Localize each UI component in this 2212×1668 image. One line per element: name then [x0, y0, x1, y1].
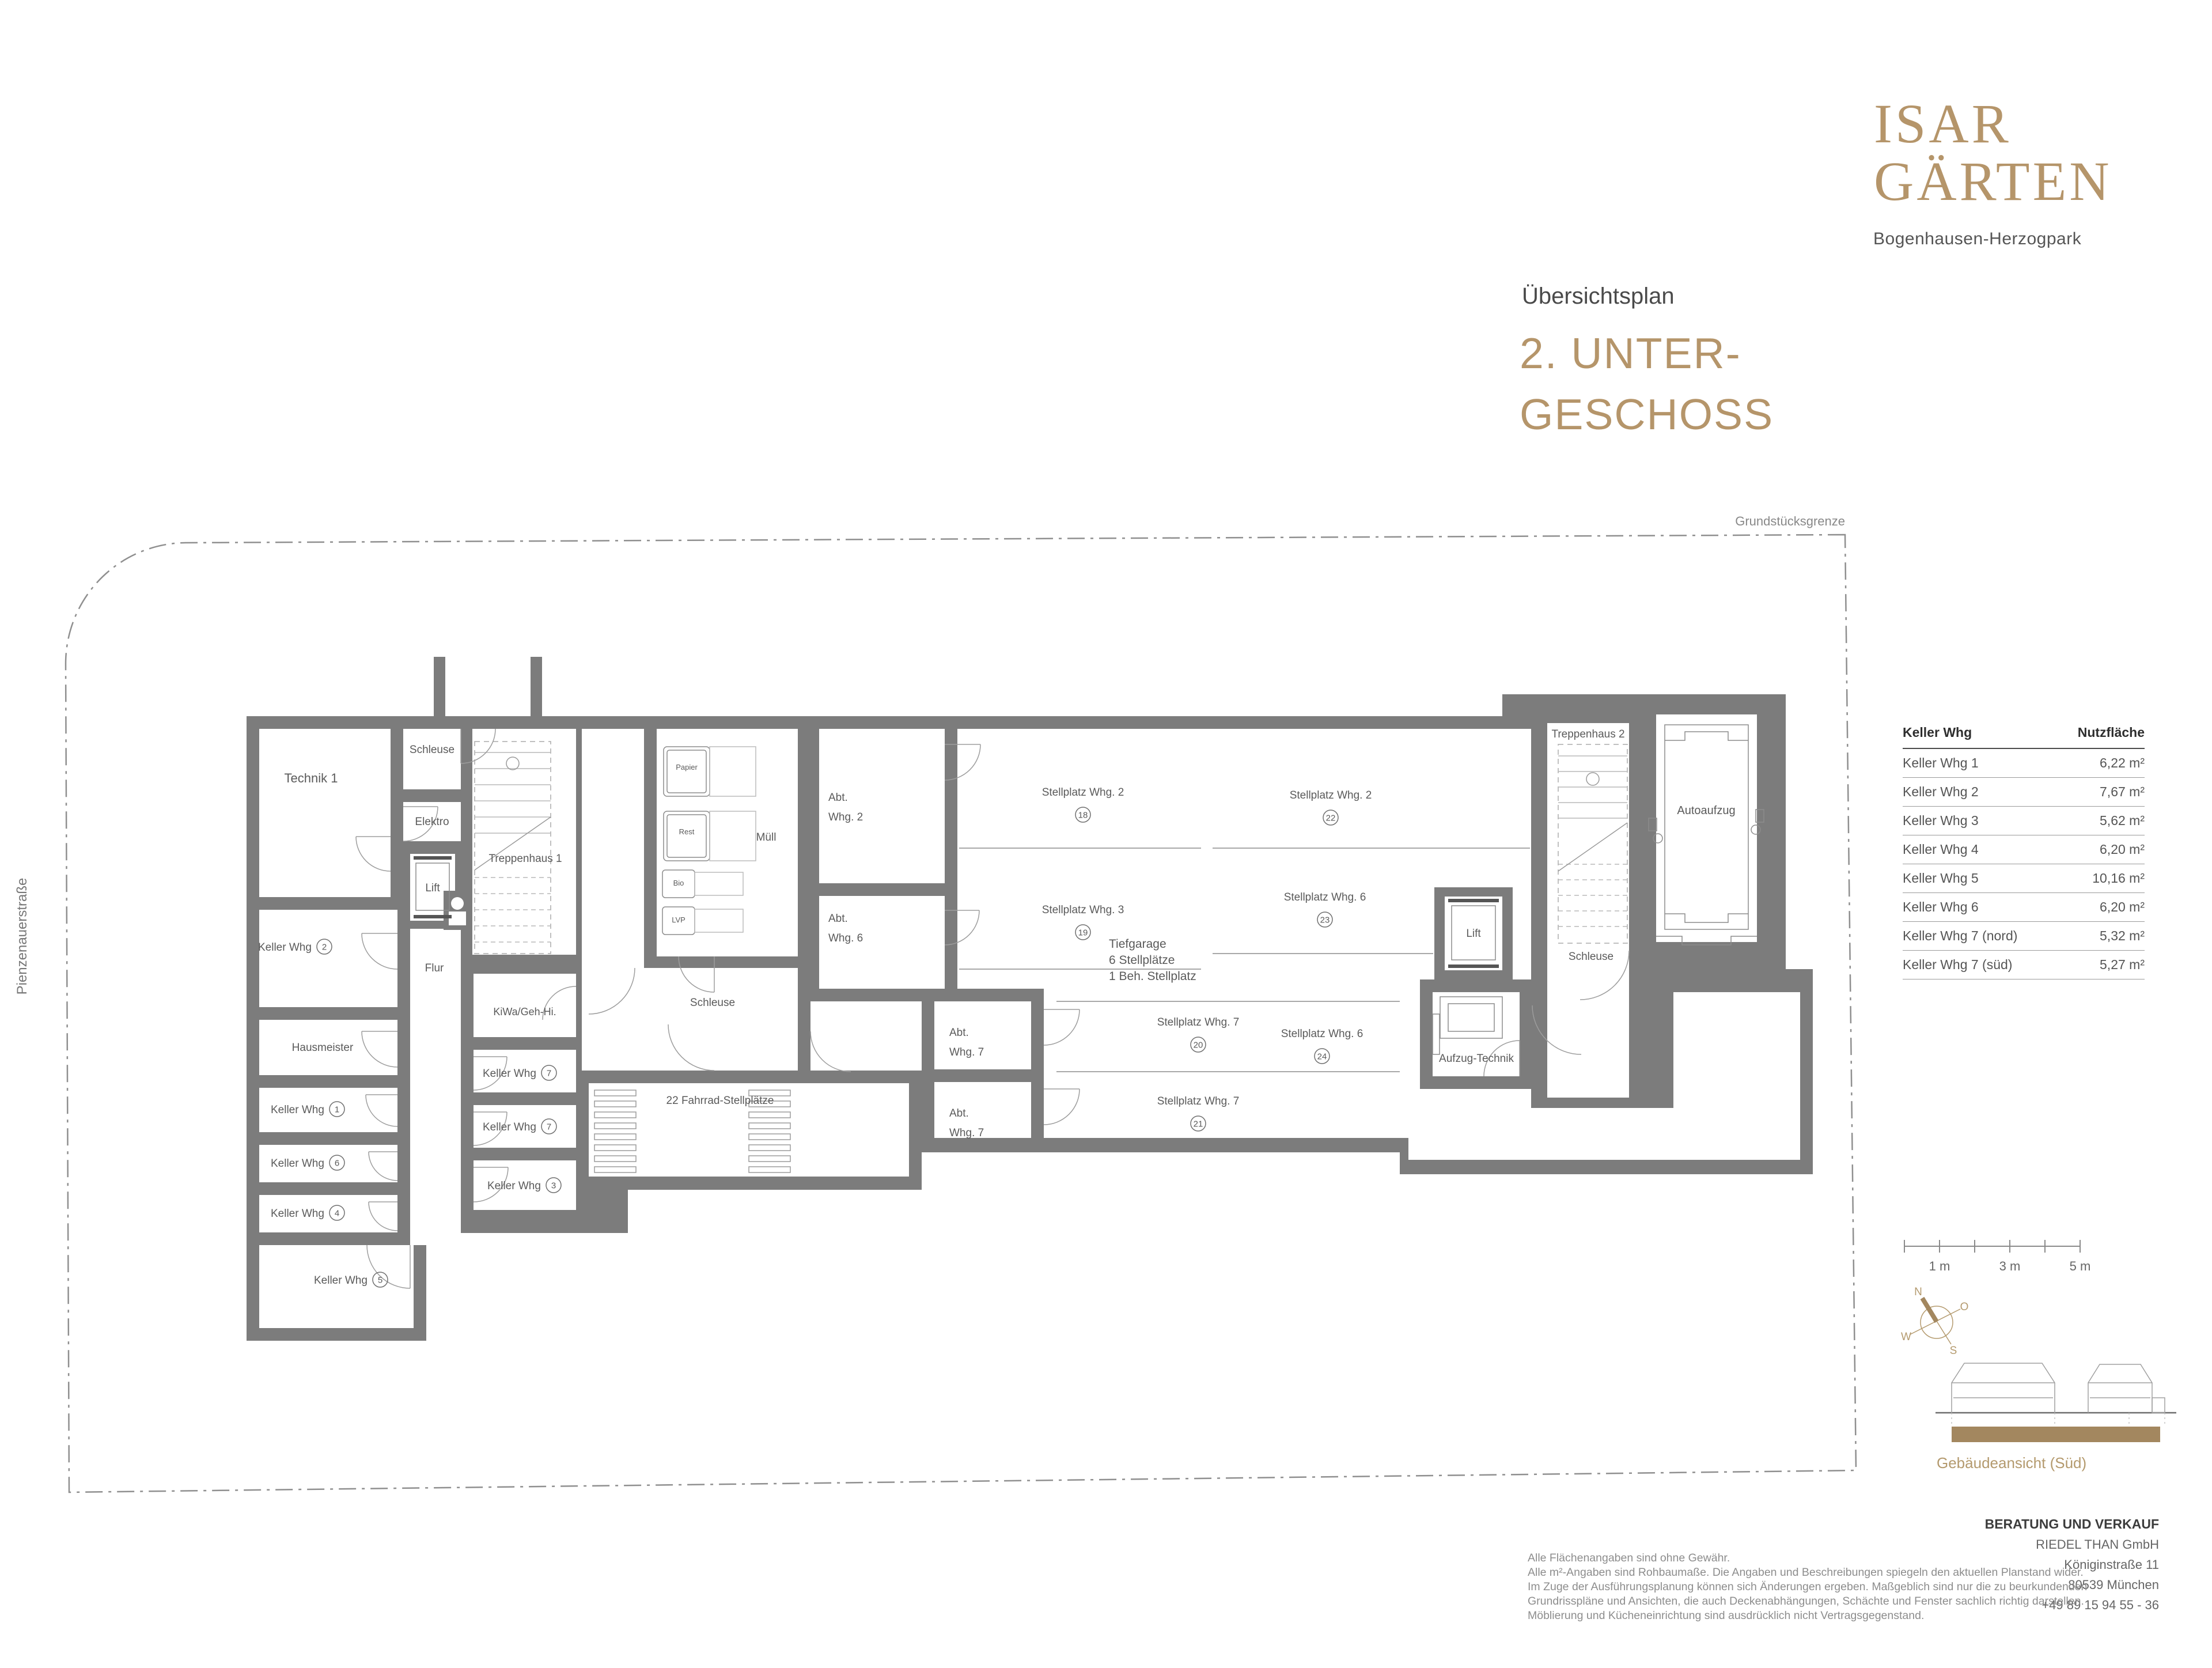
room-number: 5: [378, 1276, 382, 1285]
room-label: Technik 1: [285, 771, 338, 785]
bike-rack-icon: [749, 1112, 790, 1118]
room-number: 23: [1320, 916, 1330, 925]
room-label: Schleuse: [410, 744, 454, 756]
room-label: LVP: [672, 916, 685, 924]
room-label: Keller Whg: [314, 1274, 368, 1287]
bike-rack-icon: [594, 1145, 636, 1151]
bike-rack-icon: [594, 1123, 636, 1129]
bike-rack-icon: [594, 1167, 636, 1172]
elevation-caption: Gebäudeansicht (Süd): [1937, 1454, 2086, 1472]
room-number: 24: [1317, 1052, 1327, 1062]
room-label: Stellplatz Whg. 3: [1042, 904, 1124, 916]
room-label: Keller Whg: [258, 941, 312, 954]
compass-north: N: [1914, 1286, 1922, 1298]
room-label: Elektro: [415, 816, 449, 828]
room-label: Tiefgarage: [1109, 937, 1166, 951]
room-label: Autoaufzug: [1677, 804, 1735, 817]
room-label: Treppenhaus 2: [1551, 728, 1624, 740]
room-label: Whg. 2: [828, 811, 863, 823]
room-label: Treppenhaus 1: [488, 853, 562, 865]
room-label: Abt.: [828, 913, 848, 925]
room-label: Lift: [1466, 928, 1481, 940]
compass-needle-icon: [1922, 1298, 1937, 1322]
room-number: 18: [1078, 811, 1088, 820]
bike-rack-icon: [749, 1145, 790, 1151]
bike-rack-icon: [594, 1101, 636, 1107]
room-number: 4: [335, 1209, 339, 1219]
street-label: Pienzenauerstraße: [14, 878, 30, 995]
compass-east: O: [1960, 1301, 1969, 1313]
room-label: Schleuse: [1569, 951, 1613, 963]
room-label: Flur: [425, 962, 444, 974]
bike-rack-icon: [594, 1156, 636, 1162]
room-number: 7: [547, 1122, 551, 1132]
room-label: 6 Stellplätze: [1109, 954, 1175, 967]
scale-label-5m: 5 m: [2070, 1259, 2091, 1273]
compass-west: W: [1901, 1331, 1911, 1343]
compass-south: S: [1950, 1345, 1957, 1357]
scale-bar: [1904, 1240, 2080, 1253]
room-label: 22 Fahrrad-Stellplätze: [666, 1095, 774, 1107]
room-number: 21: [1194, 1119, 1203, 1129]
room-label: KiWa/Geh-Hi.: [493, 1006, 556, 1018]
room-number: 7: [547, 1069, 551, 1079]
room-label: Bio: [673, 879, 684, 887]
room-label: Keller Whg: [487, 1180, 541, 1192]
room-number: 19: [1078, 928, 1088, 938]
room-label: Stellplatz Whg. 6: [1284, 891, 1366, 903]
scale-label-1m: 1 m: [1929, 1259, 1950, 1273]
room-label: 1 Beh. Stellplatz: [1109, 970, 1196, 983]
page: ISAR GÄRTEN Bogenhausen-Herzogpark Übers…: [0, 0, 2212, 1668]
room-label: Müll: [756, 831, 777, 844]
room-number: 2: [322, 943, 327, 952]
room-label: Papier: [676, 763, 698, 771]
bike-rack-icon: [594, 1134, 636, 1140]
room-label: Keller Whg: [271, 1208, 324, 1220]
room-label: Abt.: [828, 792, 848, 804]
room-number: 3: [551, 1181, 556, 1191]
room-label: Abt.: [949, 1107, 969, 1119]
room-label: Stellplatz Whg. 2: [1290, 789, 1372, 801]
bike-rack-icon: [594, 1090, 636, 1096]
room-number: 22: [1326, 814, 1336, 823]
room-label: Stellplatz Whg. 7: [1157, 1016, 1240, 1028]
building-elevation: Gebäudeansicht (Süd): [1935, 1363, 2176, 1472]
room-label: Aufzug-Technik: [1439, 1053, 1514, 1065]
floor-plan: Grundstücksgrenze Pienzenauerstraße: [0, 0, 2212, 1668]
room-label: Schleuse: [690, 997, 735, 1009]
room-label: Abt.: [949, 1027, 969, 1039]
bike-rack-icon: [749, 1156, 790, 1162]
room-label: Lift: [425, 882, 440, 894]
room-label: Whg. 7: [949, 1127, 984, 1139]
room-label: Keller Whg: [271, 1104, 324, 1116]
room-label: Stellplatz Whg. 2: [1042, 786, 1124, 799]
room-label: Keller Whg: [483, 1121, 536, 1133]
room-number: 1: [335, 1105, 339, 1115]
bike-rack-icon: [594, 1112, 636, 1118]
scale-label-3m: 3 m: [1999, 1259, 2021, 1273]
compass: N O S W: [1901, 1286, 1968, 1357]
room-label: Whg. 6: [828, 932, 863, 944]
bike-rack-icon: [749, 1123, 790, 1129]
room-label: Stellplatz Whg. 7: [1157, 1095, 1240, 1107]
room-label: Whg. 7: [949, 1046, 984, 1058]
room-label: Stellplatz Whg. 6: [1281, 1028, 1363, 1040]
room-number: 6: [335, 1159, 339, 1168]
room-label: Keller Whg: [483, 1068, 536, 1080]
boundary-label: Grundstücksgrenze: [1735, 514, 1845, 528]
scale-bar-labels: 1 m 3 m 5 m: [1929, 1259, 2091, 1273]
bike-rack-icon: [749, 1167, 790, 1172]
room-number: 20: [1194, 1041, 1203, 1050]
room-label: Rest: [679, 827, 695, 836]
room-label: Keller Whg: [271, 1158, 324, 1170]
bike-rack-icon: [749, 1134, 790, 1140]
elevation-basement-band: [1952, 1427, 2160, 1442]
room-label: Hausmeister: [292, 1042, 354, 1054]
